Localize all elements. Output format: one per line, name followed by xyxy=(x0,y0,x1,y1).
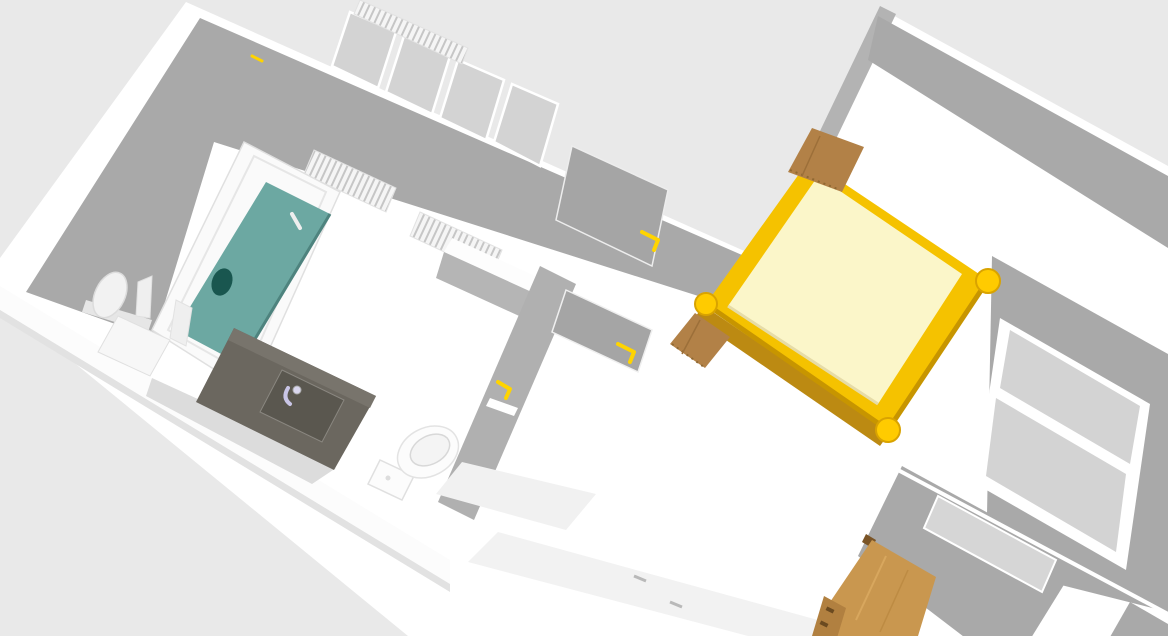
apartment-3d-render xyxy=(0,0,1168,636)
apartment-3d-viewport xyxy=(0,0,1168,636)
sink-faucet-knob-icon xyxy=(293,386,301,394)
bed-post-south[interactable] xyxy=(876,418,900,442)
decor-cone-1[interactable] xyxy=(136,276,152,318)
bed-post-west[interactable] xyxy=(695,293,717,315)
bed-post-east[interactable] xyxy=(976,269,1000,293)
toilet-flush-button-icon xyxy=(386,476,391,481)
